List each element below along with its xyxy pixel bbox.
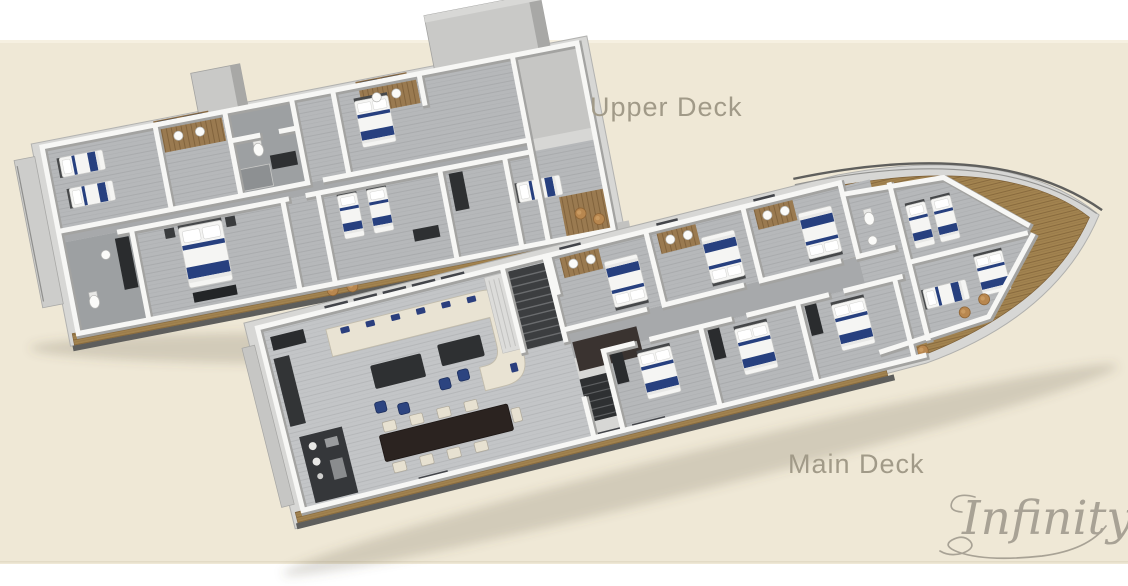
main-deck-label: Main Deck xyxy=(788,449,925,479)
deck-plan-illustration: Upper Deck Main Deck Infinity xyxy=(0,0,1128,586)
nightstand xyxy=(164,227,176,239)
yacht-deck-plan-page: Upper Deck Main Deck Infinity xyxy=(0,0,1128,586)
panel-bottom-edge xyxy=(0,561,1128,563)
upper-deck-label: Upper Deck xyxy=(590,92,743,122)
nightstand xyxy=(225,216,237,228)
signature-text: Infinity xyxy=(961,491,1128,546)
